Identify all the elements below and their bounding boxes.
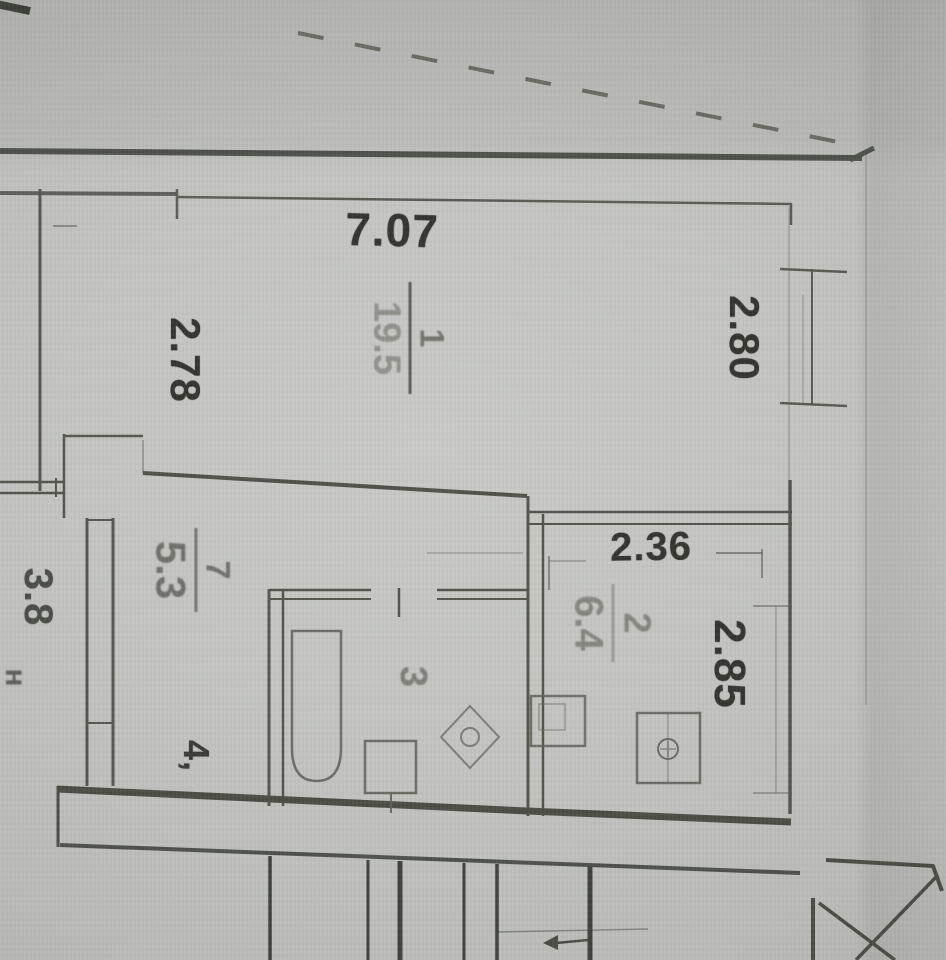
dim-bracket-room1-right [780, 269, 847, 406]
kitchen-sink-icon [531, 696, 585, 746]
right-wall-faint [789, 152, 866, 705]
fraction-bar [195, 528, 198, 612]
room-label-hall: 7 5.3 [150, 528, 235, 612]
washbasin-icon [441, 706, 499, 768]
stairs-lines [270, 856, 648, 960]
dim-room1-width: 7.07 [345, 206, 440, 254]
corridor-room-number: 4, [178, 740, 214, 772]
dim-bracket-room1-width [177, 189, 791, 225]
stove-icon [637, 713, 700, 783]
dim-kitchen-depth: 2.85 [707, 619, 751, 709]
kitchen-room-number: 2 [618, 612, 656, 633]
neighbor-note-label: н [0, 668, 30, 687]
outer-wall-left [40, 189, 143, 518]
living-room-area: 19.5 [368, 301, 406, 375]
dim-bracket-kitchen-depth [753, 606, 792, 793]
neighbor-area-label: 3.8 [18, 568, 58, 627]
kitchen-room-area: 6.4 [569, 595, 609, 651]
floor-plan-linework [0, 0, 946, 960]
hall-bathroom-wall [269, 589, 283, 806]
dim-room1-depth: 2.78 [164, 317, 206, 403]
block-bottom-wall [57, 786, 791, 847]
stairs-direction-arrow [543, 935, 588, 950]
living-room-number: 1 [415, 329, 449, 348]
dim-room1-right: 2.80 [723, 295, 765, 381]
elevator-icon [813, 860, 942, 960]
floor-plan-scan: 7.07 2.78 2.80 2.36 2.85 1 19.5 2 6.4 7 … [0, 0, 946, 960]
neighbor-wall-stubs [0, 478, 64, 497]
hall-left-double-wall [87, 518, 113, 786]
hall-room-area: 5.3 [150, 541, 192, 599]
dashed-boundary-line [298, 33, 858, 146]
room-label-kitchen: 2 6.4 [569, 584, 656, 662]
fraction-bar [409, 282, 412, 394]
fraction-bar [612, 584, 615, 662]
room1-bottom-wall [143, 473, 527, 496]
hall-room-number: 7 [201, 561, 235, 580]
bathroom-room-number: 3 [394, 666, 432, 688]
stairwell-top-wall [60, 845, 800, 873]
scan-corner-mark [0, 4, 30, 11]
dim-kitchen-width: 2.36 [610, 526, 693, 567]
bathroom-top-wall [270, 553, 527, 617]
bathtub-icon [292, 631, 341, 781]
room-label-living: 1 19.5 [368, 282, 449, 394]
